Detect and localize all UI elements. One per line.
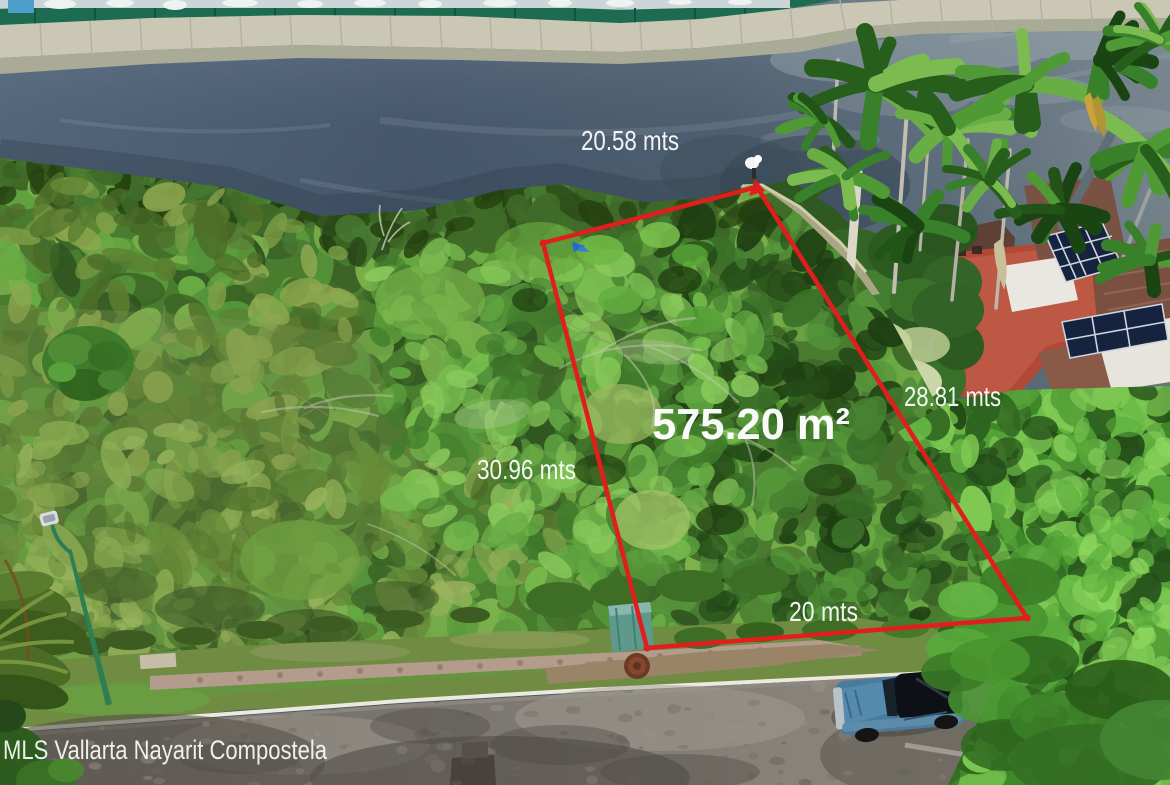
svg-text:20.58 mts: 20.58 mts [581,125,679,156]
svg-text:575.20 m²: 575.20 m² [652,400,850,449]
svg-text:20 mts: 20 mts [789,596,858,627]
svg-text:30.96 mts: 30.96 mts [477,454,576,485]
svg-text:MLS Vallarta Nayarit Compostel: MLS Vallarta Nayarit Compostela [3,735,328,765]
svg-text:28.81 mts: 28.81 mts [904,381,1001,412]
